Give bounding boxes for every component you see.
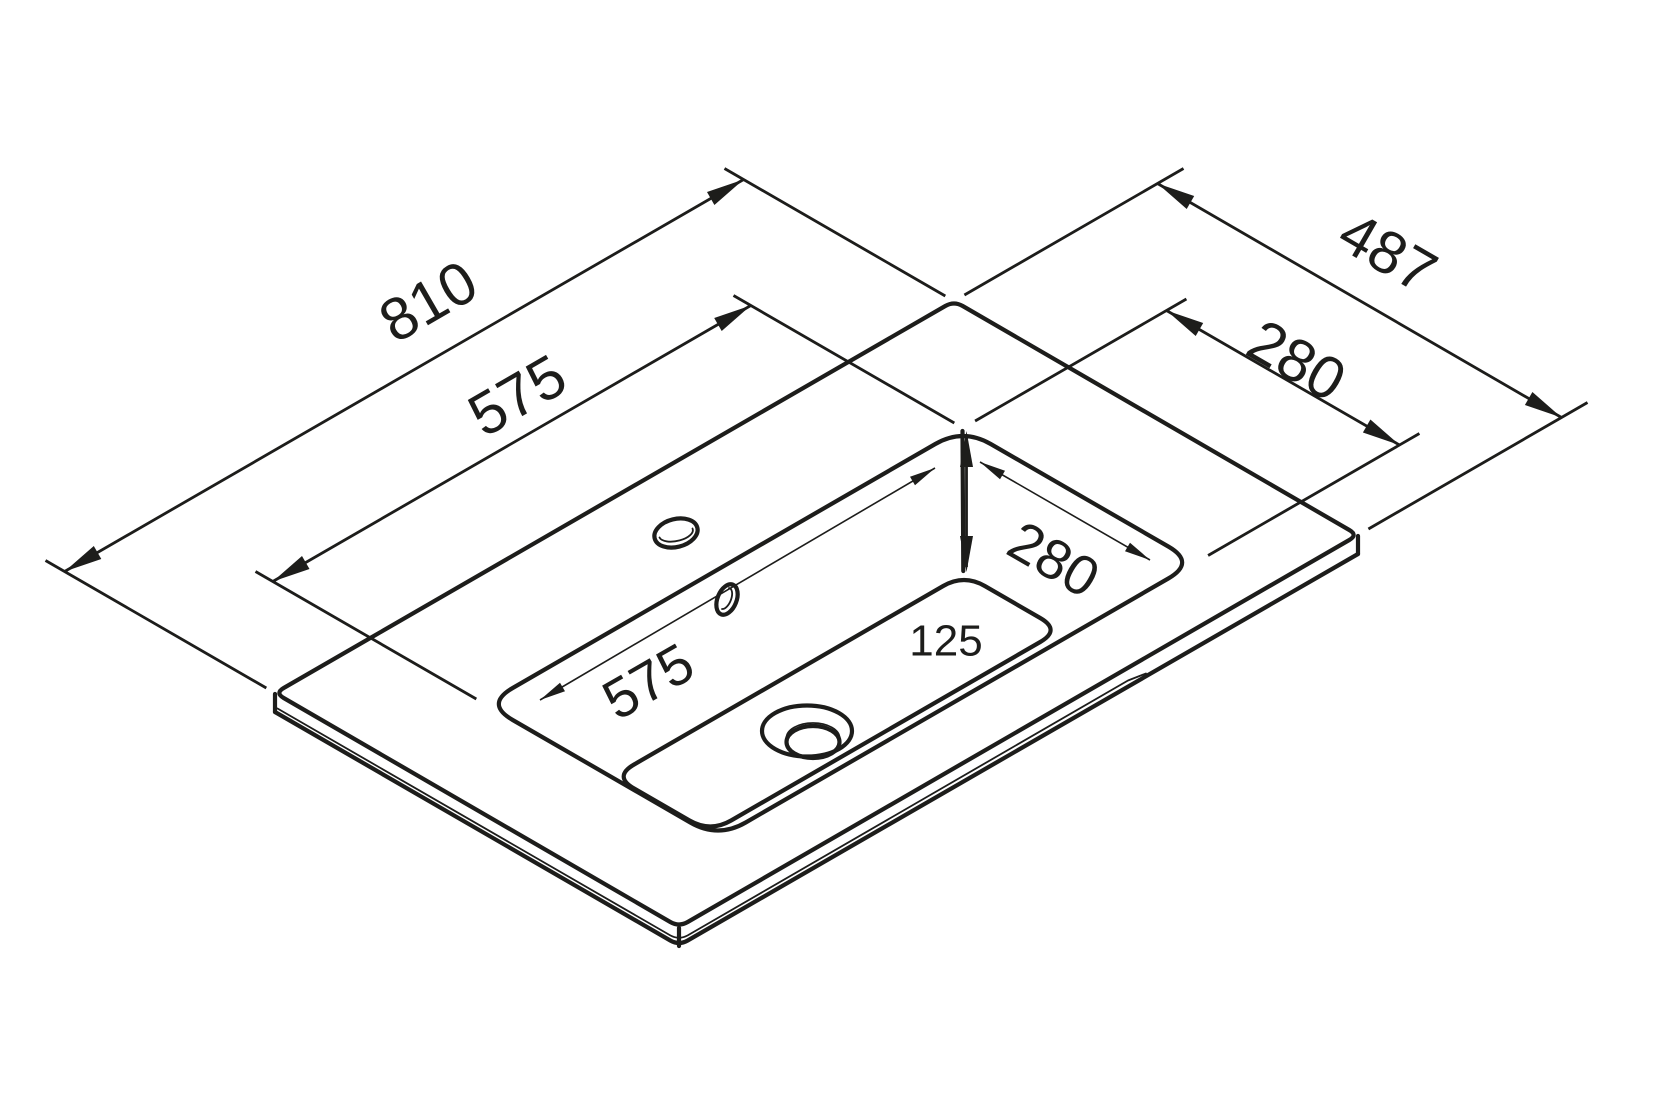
extension-line — [725, 169, 946, 297]
arrowhead — [707, 180, 744, 206]
arrowhead — [540, 683, 565, 700]
extension-line — [964, 169, 1183, 296]
dimension-line — [540, 468, 935, 700]
dimension-line — [65, 180, 744, 572]
countertop-slab — [275, 304, 1358, 947]
slab-edge-highlight-line — [278, 674, 1147, 938]
extension-line — [734, 296, 955, 424]
arrowhead — [1167, 311, 1204, 337]
dim-label-basin-width-outer: 575 — [457, 341, 577, 449]
drawing-page: 810 575 487 280 575 280 — [0, 0, 1680, 1120]
slab-bottom-edge — [275, 554, 1358, 943]
arrowhead — [714, 306, 751, 332]
arrowhead — [273, 556, 310, 582]
extension-line — [1208, 434, 1419, 556]
overflow-hole — [712, 581, 742, 618]
overflow-hole-outline — [712, 581, 742, 618]
dim-label-basin-depth-outer: 280 — [1237, 306, 1357, 414]
dim-label-countertop-depth: 487 — [1328, 198, 1448, 306]
extension-line — [256, 572, 477, 700]
arrowhead — [1158, 184, 1195, 210]
arrowhead — [1125, 543, 1150, 560]
dimension-280-inner: 280 — [980, 462, 1150, 610]
slab-top-face — [279, 304, 1353, 925]
dim-label-basin-width-inner: 575 — [592, 630, 704, 731]
basin-floor-outline — [624, 580, 1051, 827]
basin-rim-outline — [499, 436, 1182, 831]
arrowhead — [910, 468, 935, 485]
dim-label-basin-depth-vertical: 125 — [909, 616, 982, 665]
dim-label-countertop-width: 810 — [368, 247, 488, 355]
extension-line — [1368, 403, 1587, 530]
dim-label-basin-depth-inner: 280 — [998, 508, 1110, 609]
drain-hole — [762, 706, 852, 759]
arrowhead — [1525, 392, 1562, 418]
extension-line — [975, 299, 1186, 421]
faucet-hole-outline — [651, 514, 700, 552]
arrowhead — [980, 462, 1005, 479]
arrowhead — [1363, 420, 1400, 446]
faucet-hole-inner-arc — [660, 529, 693, 542]
faucet-hole — [651, 514, 700, 552]
isometric-drawing: 810 575 487 280 575 280 — [0, 0, 1680, 1120]
dimension-125: 125 — [909, 431, 982, 665]
basin — [499, 431, 1182, 831]
arrowhead — [65, 546, 102, 572]
extension-line — [46, 561, 267, 689]
drain-inner-ring — [787, 726, 840, 758]
overflow-hole-inner-arc — [722, 588, 732, 609]
